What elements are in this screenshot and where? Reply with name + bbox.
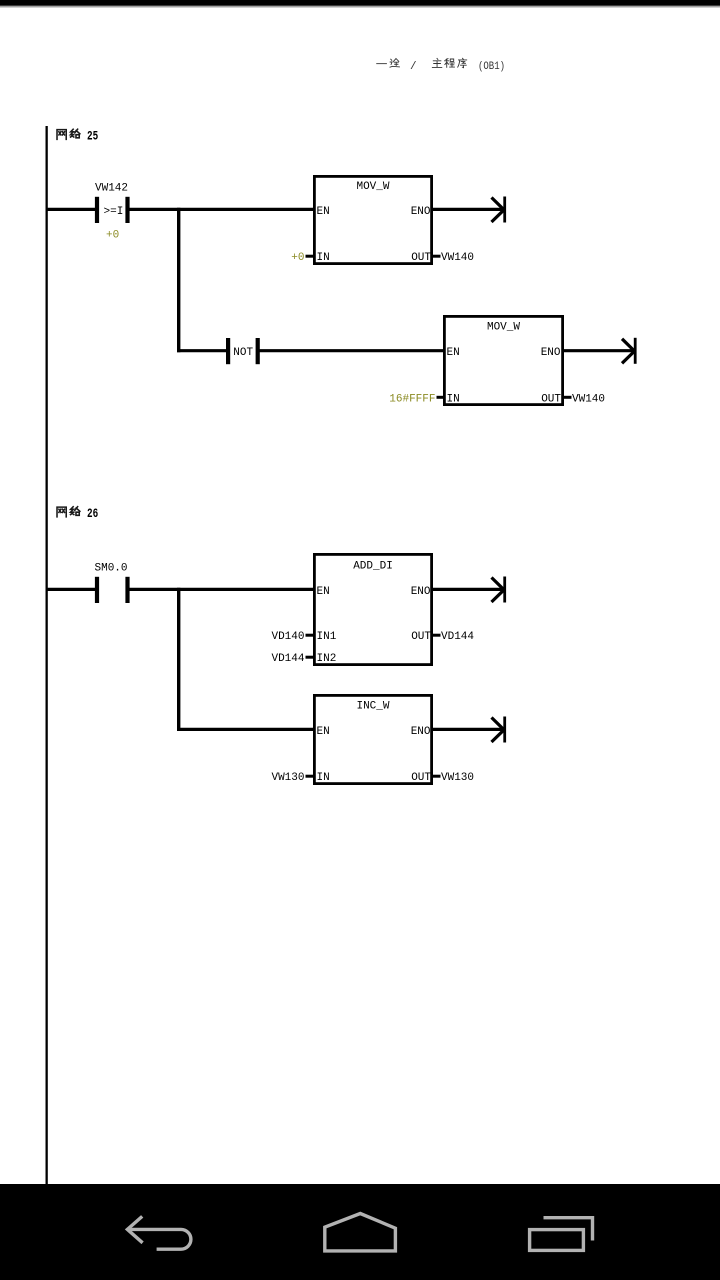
svg-text:VD140: VD140 (271, 631, 304, 643)
svg-text:VW130: VW130 (271, 772, 304, 784)
svg-text:OUT: OUT (541, 393, 561, 405)
svg-text:SM0.0: SM0.0 (95, 563, 128, 575)
svg-text:OUT: OUT (411, 631, 431, 643)
svg-text:VD144: VD144 (441, 631, 474, 643)
svg-text:VD144: VD144 (271, 653, 304, 665)
svg-text:VW142: VW142 (95, 183, 128, 195)
svg-text:+0: +0 (291, 252, 304, 264)
svg-text:ENO: ENO (541, 347, 561, 359)
svg-text:VW130: VW130 (441, 772, 474, 784)
svg-text:OUT: OUT (411, 772, 431, 784)
svg-text:ENO: ENO (411, 726, 431, 738)
svg-text:IN: IN (447, 393, 460, 405)
svg-text:INC_W: INC_W (356, 701, 389, 713)
svg-text:>=I: >=I (104, 206, 124, 218)
svg-text:16#FFFF: 16#FFFF (389, 393, 435, 405)
svg-text:(OB1): (OB1) (478, 61, 505, 73)
svg-text:IN2: IN2 (317, 653, 337, 665)
svg-text:IN: IN (317, 772, 330, 784)
svg-text:EN: EN (447, 347, 460, 359)
svg-text:ENO: ENO (411, 206, 431, 218)
svg-text:IN1: IN1 (317, 631, 337, 643)
svg-text:ADD_DI: ADD_DI (353, 561, 393, 573)
svg-text:+0: +0 (106, 230, 119, 242)
svg-text:MOV_W: MOV_W (487, 322, 520, 334)
svg-text:OUT: OUT (411, 252, 431, 264)
svg-text:EN: EN (317, 726, 330, 738)
svg-text:ENO: ENO (411, 586, 431, 598)
svg-text:MOV_W: MOV_W (356, 181, 389, 193)
svg-text:VW140: VW140 (441, 252, 474, 264)
svg-text:EN: EN (317, 206, 330, 218)
svg-text:IN: IN (317, 252, 330, 264)
svg-text:EN: EN (317, 586, 330, 598)
svg-text:26: 26 (87, 507, 98, 521)
svg-text:VW140: VW140 (572, 393, 605, 405)
svg-text:25: 25 (87, 130, 98, 144)
svg-text:/: / (410, 61, 417, 73)
svg-text:NOT: NOT (233, 347, 253, 359)
